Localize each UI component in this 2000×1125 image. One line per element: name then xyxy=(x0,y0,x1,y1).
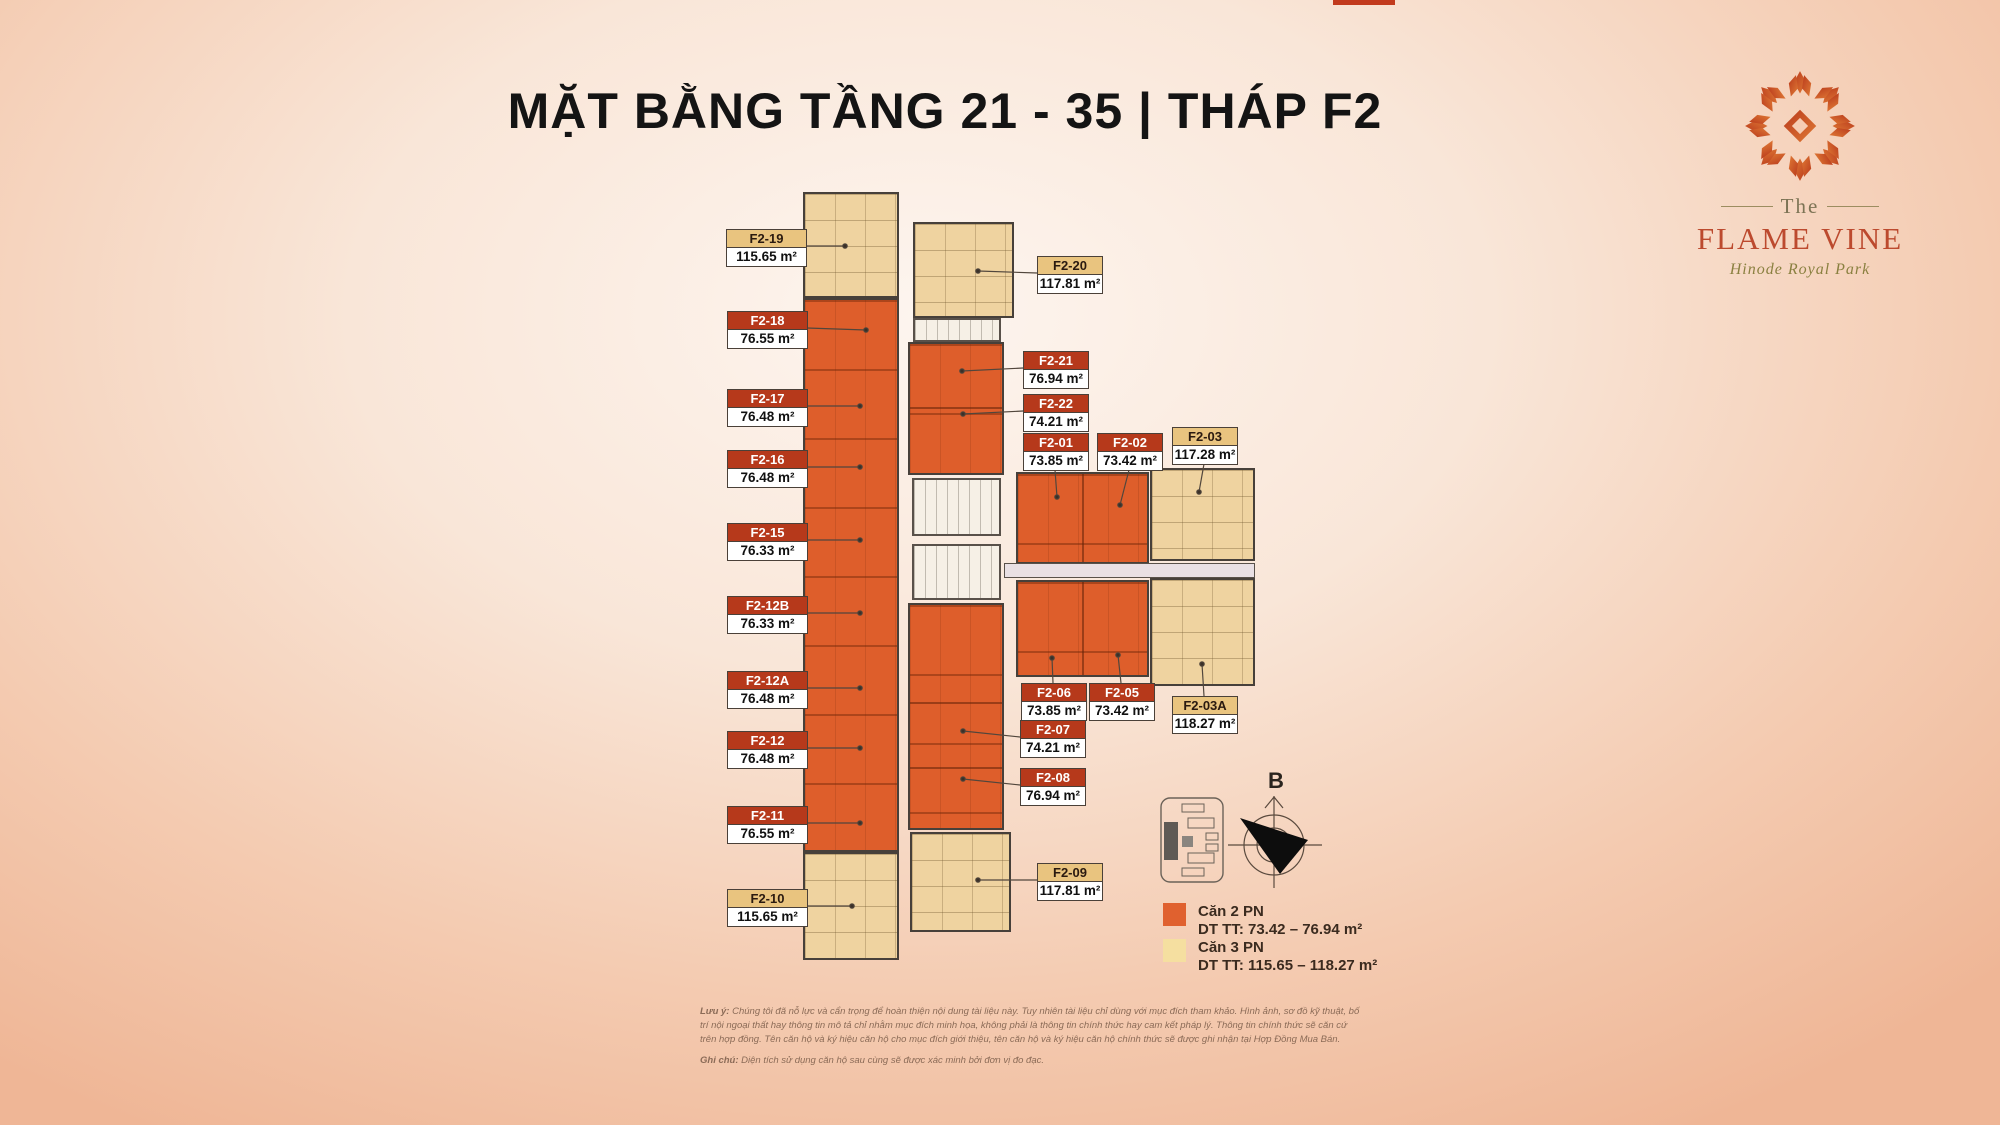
leader-dot xyxy=(850,904,854,908)
leader-dot xyxy=(843,244,847,248)
leader-dot xyxy=(976,878,980,882)
legend-swatch-3pn xyxy=(1163,939,1186,962)
leader-dot xyxy=(858,746,862,750)
unit-code: F2-03 xyxy=(1172,427,1238,445)
unit-area: 73.42 m² xyxy=(1097,451,1163,471)
poster-canvas: MẶT BẰNG TẦNG 21 - 35 | THÁP F2 xyxy=(0,0,2000,1125)
unit-code: F2-18 xyxy=(727,311,808,329)
unit-code: F2-05 xyxy=(1089,683,1155,701)
unit-code: F2-19 xyxy=(726,229,807,247)
leader-line xyxy=(1202,664,1204,696)
unit-label-f2-01: F2-01 73.85 m² xyxy=(1023,433,1089,471)
unit-area: 117.28 m² xyxy=(1172,445,1238,465)
leader-dot xyxy=(961,777,965,781)
unit-code: F2-16 xyxy=(727,450,808,468)
unit-area: 76.48 m² xyxy=(727,468,808,488)
unit-area: 76.55 m² xyxy=(727,329,808,349)
unit-area: 73.85 m² xyxy=(1023,451,1089,471)
unit-code: F2-17 xyxy=(727,389,808,407)
leader-dot xyxy=(858,686,862,690)
unit-area: 74.21 m² xyxy=(1023,412,1089,432)
legend-text-2pn: Căn 2 PN DT TT: 73.42 – 76.94 m² xyxy=(1198,903,1362,939)
unit-code: F2-02 xyxy=(1097,433,1163,451)
unit-area: 118.27 m² xyxy=(1172,714,1238,734)
unit-code: F2-21 xyxy=(1023,351,1089,369)
unit-label-f2-17: F2-17 76.48 m² xyxy=(727,389,808,427)
leader-dot xyxy=(960,369,964,373)
leader-dot xyxy=(961,412,965,416)
unit-code: F2-12A xyxy=(727,671,808,689)
leader-dot xyxy=(858,404,862,408)
leader-dot xyxy=(1197,490,1201,494)
unit-area: 73.42 m² xyxy=(1089,701,1155,721)
compass-icon: B xyxy=(1222,770,1326,892)
unit-label-f2-02: F2-02 73.42 m² xyxy=(1097,433,1163,471)
unit-area: 76.94 m² xyxy=(1023,369,1089,389)
leader-lines-layer xyxy=(0,0,2000,1125)
unit-label-f2-05: F2-05 73.42 m² xyxy=(1089,683,1155,721)
unit-label-f2-18: F2-18 76.55 m² xyxy=(727,311,808,349)
legend-name: Căn 3 PN xyxy=(1198,939,1264,956)
unit-label-f2-03: F2-03 117.28 m² xyxy=(1172,427,1238,465)
leader-line xyxy=(1052,658,1053,683)
tower-f2-highlight xyxy=(1164,822,1178,860)
leader-dot xyxy=(1118,503,1122,507)
unit-area: 74.21 m² xyxy=(1020,738,1086,758)
unit-area: 115.65 m² xyxy=(726,247,807,267)
leader-line xyxy=(1055,470,1057,497)
note-remark: Ghi chú: Diện tích sử dụng căn hộ sau cù… xyxy=(700,1054,1360,1068)
leader-line xyxy=(963,731,1020,737)
unit-code: F2-08 xyxy=(1020,768,1086,786)
unit-code: F2-12B xyxy=(727,596,808,614)
leader-dot xyxy=(1050,656,1054,660)
legend-range: DT TT: 115.65 – 118.27 m² xyxy=(1198,957,1377,974)
unit-area: 76.48 m² xyxy=(727,407,808,427)
unit-label-f2-09: F2-09 117.81 m² xyxy=(1037,863,1103,901)
unit-area: 117.81 m² xyxy=(1037,881,1103,901)
legend-item-3pn: Căn 3 PN DT TT: 115.65 – 118.27 m² xyxy=(1163,939,1377,975)
leader-dot xyxy=(864,328,868,332)
unit-area: 76.48 m² xyxy=(727,749,808,769)
unit-label-f2-12a: F2-12A 76.48 m² xyxy=(727,671,808,709)
footer-notes: Lưu ý: Chúng tôi đã nỗ lực và cẩn trọng … xyxy=(700,1005,1360,1076)
leader-line xyxy=(962,368,1023,371)
legend-item-2pn: Căn 2 PN DT TT: 73.42 – 76.94 m² xyxy=(1163,903,1362,939)
note-text: Diện tích sử dụng căn hộ sau cùng sẽ đượ… xyxy=(739,1055,1044,1066)
note-label: Ghi chú: xyxy=(700,1055,739,1066)
unit-label-f2-21: F2-21 76.94 m² xyxy=(1023,351,1089,389)
leader-line xyxy=(1199,464,1204,492)
leader-dot xyxy=(858,465,862,469)
leader-dot xyxy=(858,538,862,542)
unit-area: 76.48 m² xyxy=(727,689,808,709)
leader-dot xyxy=(858,611,862,615)
unit-code: F2-03A xyxy=(1172,696,1238,714)
leader-dot xyxy=(1116,653,1120,657)
note-disclaimer: Lưu ý: Chúng tôi đã nỗ lực và cẩn trọng … xyxy=(700,1005,1360,1046)
unit-area: 76.33 m² xyxy=(727,541,808,561)
leader-line xyxy=(1118,655,1121,683)
leader-line xyxy=(963,779,1020,785)
leader-line xyxy=(963,411,1023,414)
legend-range: DT TT: 73.42 – 76.94 m² xyxy=(1198,921,1362,938)
unit-label-f2-15: F2-15 76.33 m² xyxy=(727,523,808,561)
leader-dot xyxy=(1200,662,1204,666)
unit-area: 76.33 m² xyxy=(727,614,808,634)
unit-label-f2-12b: F2-12B 76.33 m² xyxy=(727,596,808,634)
unit-area: 76.94 m² xyxy=(1020,786,1086,806)
unit-code: F2-10 xyxy=(727,889,808,907)
unit-label-f2-16: F2-16 76.48 m² xyxy=(727,450,808,488)
unit-area: 115.65 m² xyxy=(727,907,808,927)
unit-label-f2-11: F2-11 76.55 m² xyxy=(727,806,808,844)
legend-text-3pn: Căn 3 PN DT TT: 115.65 – 118.27 m² xyxy=(1198,939,1377,975)
tower-locator-map xyxy=(1158,795,1228,887)
leader-dot xyxy=(1055,495,1059,499)
unit-code: F2-11 xyxy=(727,806,808,824)
unit-code: F2-20 xyxy=(1037,256,1103,274)
unit-area: 117.81 m² xyxy=(1037,274,1103,294)
unit-area: 73.85 m² xyxy=(1021,701,1087,721)
unit-code: F2-06 xyxy=(1021,683,1087,701)
leader-dot xyxy=(858,821,862,825)
unit-label-f2-08: F2-08 76.94 m² xyxy=(1020,768,1086,806)
compass-north-label: B xyxy=(1268,770,1284,793)
unit-code: F2-22 xyxy=(1023,394,1089,412)
leader-line xyxy=(807,328,866,330)
unit-label-f2-22: F2-22 74.21 m² xyxy=(1023,394,1089,432)
unit-area: 76.55 m² xyxy=(727,824,808,844)
unit-code: F2-09 xyxy=(1037,863,1103,881)
leader-dot xyxy=(961,729,965,733)
unit-label-f2-19: F2-19 115.65 m² xyxy=(726,229,807,267)
legend-name: Căn 2 PN xyxy=(1198,903,1264,920)
leader-line xyxy=(978,271,1037,273)
unit-code: F2-01 xyxy=(1023,433,1089,451)
unit-label-f2-03a: F2-03A 118.27 m² xyxy=(1172,696,1238,734)
unit-code: F2-12 xyxy=(727,731,808,749)
unit-label-f2-10: F2-10 115.65 m² xyxy=(727,889,808,927)
leader-dot xyxy=(976,269,980,273)
legend-swatch-2pn xyxy=(1163,903,1186,926)
unit-code: F2-07 xyxy=(1020,720,1086,738)
note-label: Lưu ý: xyxy=(700,1006,729,1017)
unit-label-f2-06: F2-06 73.85 m² xyxy=(1021,683,1087,721)
unit-label-f2-20: F2-20 117.81 m² xyxy=(1037,256,1103,294)
unit-label-f2-12: F2-12 76.48 m² xyxy=(727,731,808,769)
unit-label-f2-07: F2-07 74.21 m² xyxy=(1020,720,1086,758)
unit-code: F2-15 xyxy=(727,523,808,541)
leader-line xyxy=(1120,470,1129,505)
note-text: Chúng tôi đã nỗ lực và cẩn trọng để hoàn… xyxy=(700,1006,1359,1045)
